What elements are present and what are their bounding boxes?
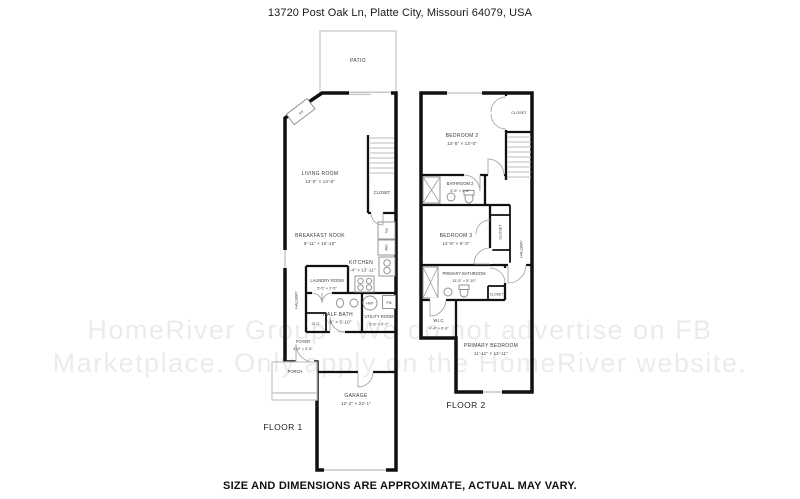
kitchen-dims: 7'-4" × 13'-11" [346, 268, 376, 273]
bedroom3-label: BEDROOM 3 [440, 233, 473, 239]
bedroom2-label: BEDROOM 2 [446, 133, 479, 139]
living-room-label: LIVING ROOM [302, 171, 339, 177]
half-bath-dims: 7'-5" × 5'-10" [324, 320, 351, 325]
breakfast-nook-dims: 9'-11" × 10'-10" [304, 241, 336, 246]
laundry-room-label: LAUNDRY ROOM [310, 278, 344, 283]
size-disclaimer: SIZE AND DIMENSIONS ARE APPROXIMATE, ACT… [0, 480, 800, 492]
dishwasher-label: DW [384, 244, 388, 251]
half-bath-toilet [337, 299, 344, 308]
living-room-dims: 13'-0" × 13'-6" [305, 179, 335, 184]
water-heater-label: HWT [366, 302, 374, 306]
floor1-hallway-label: HALLWAY [295, 291, 299, 309]
bathroom2-dims: 9'-5" × 4'-6" [450, 189, 470, 193]
primary-bedroom-dims: 11'-11" × 13'-11" [474, 351, 508, 356]
garage-dims: 12'-2" × 22'-1" [341, 401, 371, 406]
floor2-title: FLOOR 2 [446, 400, 485, 410]
clo-label: CLO. [312, 322, 321, 326]
closet-bedroom3-label: CLOSET [499, 224, 503, 240]
porch-label: PORCH [288, 369, 303, 374]
foyer-dims: 4'-9" × 3'-5" [293, 347, 313, 351]
floorplan-canvas: FP FR DW HWT FN [0, 0, 800, 499]
utility-room-label: UTILITY ROOM [364, 314, 394, 319]
bathroom2-sink [447, 193, 455, 201]
primary-sink [444, 288, 452, 296]
patio-label: PATIO [350, 58, 366, 64]
bathroom2-label: BATHROOM 2 [447, 181, 474, 186]
half-bath-label: HALF BATH [323, 312, 353, 318]
closet-bedroom2-label: CLOSET [511, 111, 527, 115]
primary-bathroom-dims: 13'-5" × 5'-10" [452, 279, 476, 283]
half-bath-sink [350, 299, 358, 307]
porch [272, 362, 317, 400]
kitchen-label: KITCHEN [349, 260, 373, 266]
laundry-room-dims: 5'-5" × 2'-5" [317, 287, 337, 291]
wic-label: W.I.C. [433, 318, 444, 323]
utility-room-dims: 5'-6" × 5'-7" [369, 323, 389, 327]
fridge-label: FR [384, 228, 388, 233]
floor2-hallway-label: HALLWAY [520, 240, 524, 258]
furnace-label: FN [386, 301, 391, 305]
primary-bedroom-label: PRIMARY BEDROOM [464, 343, 518, 349]
floor2-plan: BEDROOM 2 13'-5" × 13'-0" CLOSET BATHROO… [421, 90, 532, 410]
breakfast-nook-label: BREAKFAST NOOK [295, 233, 345, 239]
garage-label: GARAGE [344, 393, 368, 399]
floor1-title: FLOOR 1 [263, 422, 302, 432]
bedroom3-dims: 13'-5" × 9'-3" [442, 241, 469, 246]
floor1-plan: FP FR DW HWT FN [263, 31, 396, 473]
primary-bathroom-label: PRIMARY BATHROOM [443, 271, 487, 276]
foyer-label: FOYER [296, 339, 310, 344]
bedroom2-dims: 13'-5" × 13'-0" [447, 141, 477, 146]
wic-dims: 4'-4" × 6'-6" [429, 327, 449, 331]
closet-under-stairs-label: CLOSET [374, 190, 391, 195]
closet-primary-label: CLOSET [490, 293, 504, 297]
